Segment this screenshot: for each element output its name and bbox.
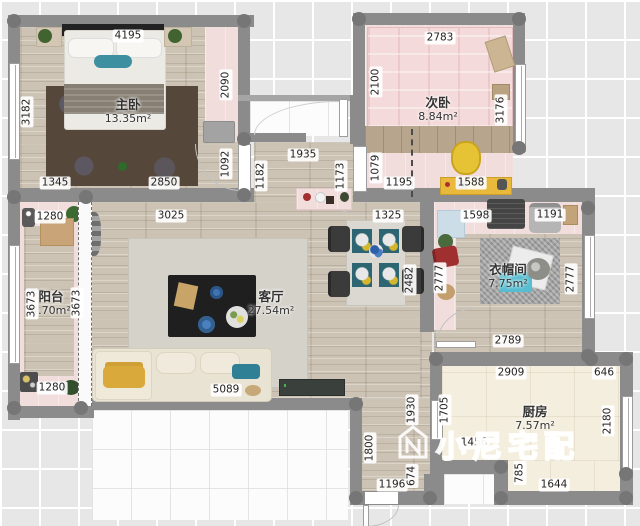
dim-second-width-top: 2783 [425, 32, 456, 45]
dim-hall-1173: 1173 [335, 161, 348, 192]
sofa-teal-pillow [232, 364, 260, 379]
master-window[interactable] [9, 63, 20, 160]
dim-cloak-height-left: 2777 [434, 263, 447, 294]
balcony-vase[interactable] [22, 208, 35, 227]
console-bike-icon [340, 192, 349, 202]
cloak-fur-stone-icon [526, 258, 550, 280]
wall-node [619, 467, 633, 481]
dim-master-width-top: 4195 [113, 30, 144, 43]
dim-kitchen-width-top: 2909 [496, 367, 527, 380]
dim-hall-1930: 1930 [406, 395, 419, 426]
console-box-icon [326, 196, 334, 204]
dim-dining-height: 2482 [404, 265, 417, 296]
dining-centerpiece-icon [369, 244, 383, 258]
master-door-leaf[interactable] [238, 144, 251, 192]
dim-hall-top-width: 1935 [288, 149, 319, 162]
entry-door-leaf[interactable] [363, 505, 369, 526]
desk-item-red-icon [445, 182, 450, 187]
wall-node [581, 201, 595, 215]
wall-master-bottom [8, 188, 254, 202]
dim-dining-width: 1325 [373, 210, 404, 223]
floor-plan-canvas: 4195318220901345285010921935118211731079… [0, 0, 640, 526]
dim-cloak-top-left: 1598 [461, 210, 492, 223]
dim-second-height-right: 3176 [495, 95, 508, 126]
wall-node [349, 397, 363, 411]
dim-master-closet-height: 2090 [220, 70, 233, 101]
wall-node [7, 190, 21, 204]
entry-door-arc [366, 505, 399, 526]
exterior-area-bottom [92, 410, 348, 520]
wall-node [237, 14, 251, 28]
wall-node [581, 349, 595, 363]
exterior-area-notch [444, 474, 494, 504]
coffee-table-flower-1-icon [210, 286, 223, 299]
coffee-table-flower-2-icon [198, 316, 215, 333]
dim-cloak-height-right: 2777 [565, 264, 578, 295]
desk-item-bottle-icon [497, 179, 507, 190]
dim-living-width-top: 3025 [156, 210, 187, 223]
cloakroom-door-leaf[interactable] [436, 341, 476, 348]
dim-master-bottom-right: 2850 [149, 177, 180, 190]
dim-cloak-top-right: 1191 [535, 209, 566, 222]
dining-chair-1[interactable] [328, 226, 350, 252]
balcony-window[interactable] [9, 245, 20, 364]
bay-door-leaf[interactable] [339, 99, 348, 137]
dim-master-bottom-left: 1345 [40, 177, 71, 190]
wall-node [429, 352, 443, 366]
wall-kitchen-bottom [494, 491, 633, 505]
small-plant-icon [118, 162, 127, 171]
console-flower-icon [303, 193, 311, 201]
room-label-cloakroom: 衣帽间7.75m² [488, 263, 528, 290]
wall-node [349, 491, 363, 505]
console-cat-icon [315, 192, 326, 203]
dim-balcony-width-bottom: 1280 [37, 382, 68, 395]
wall-node [7, 401, 21, 415]
wall-node [512, 12, 526, 26]
wall-second-left [353, 13, 365, 146]
dim-entry-width: 1196 [377, 479, 408, 492]
room-label-second-bedroom: 次卧8.84m² [418, 96, 458, 123]
dim-kitchen-mid-width: 1456 [459, 437, 490, 450]
dim-kitchen-height-left: 1705 [439, 395, 452, 426]
second-bedroom-door-leaf[interactable] [353, 146, 367, 192]
plant-left-icon [38, 29, 52, 43]
wall-node [512, 141, 526, 155]
desk-chair[interactable] [451, 141, 481, 175]
wall-master-right [238, 15, 250, 144]
dim-kitchen-top-right: 646 [592, 367, 616, 380]
wall-node [237, 132, 251, 146]
cloak-dresser[interactable] [487, 199, 525, 229]
room-label-kitchen: 厨房7.57m² [515, 405, 555, 432]
dim-hall-1800: 1800 [364, 433, 377, 464]
dining-chair-2[interactable] [328, 271, 350, 297]
dim-second-bottom-left: 1195 [384, 177, 415, 190]
sofa-cushion-1 [156, 352, 196, 374]
bed-accent-pillow [94, 55, 132, 68]
dim-balcony-height-left: 3673 [26, 289, 39, 320]
master-bench[interactable] [203, 121, 235, 143]
placemat-4 [379, 263, 399, 287]
dim-balcony-height-right: 3673 [71, 288, 84, 319]
dim-second-door-height: 1079 [370, 153, 383, 184]
plant-right-icon [168, 29, 182, 43]
entry-door-gap[interactable] [365, 492, 398, 504]
dim-master-height-left: 3182 [21, 97, 34, 128]
dim-balcony-width-top: 1280 [35, 211, 66, 224]
tv-console[interactable] [279, 379, 345, 396]
kitchen-window[interactable] [622, 396, 633, 470]
cloakroom-window[interactable] [584, 235, 595, 319]
wall-node [74, 401, 88, 415]
wall-node [619, 491, 633, 505]
wall-node [352, 12, 366, 26]
dim-second-desk: 1588 [456, 177, 487, 190]
dim-kitchen-width-bottom: 1644 [539, 479, 570, 492]
placemat-3 [352, 263, 372, 287]
dining-chair-3[interactable] [402, 226, 424, 252]
room-label-living-room: 客厅27.54m² [248, 290, 295, 317]
room-label-master-bedroom: 主卧13.35m² [105, 98, 152, 125]
wall-node [423, 491, 437, 505]
balcony-basket[interactable] [20, 372, 38, 392]
sofa-yellow-pillow [103, 366, 145, 388]
wall-node [494, 460, 508, 474]
dim-sofa-wall: 5089 [211, 384, 242, 397]
wall-node [7, 14, 21, 28]
dim-cloak-width-bottom: 2789 [493, 335, 524, 348]
dim-second-height-left: 2100 [370, 67, 383, 98]
wall-dining-east [420, 190, 434, 332]
coffee-table-plate [226, 306, 248, 328]
wall-node [237, 188, 251, 202]
wall-kitchen-top [430, 352, 633, 366]
second-bedroom-window[interactable] [515, 64, 526, 152]
wall-node [619, 352, 633, 366]
wall-second-top [353, 13, 525, 25]
dim-master-door: 1092 [220, 149, 233, 180]
wall-node [79, 190, 93, 204]
dim-entry-674: 674 [406, 464, 419, 488]
sofa-throw [245, 385, 261, 396]
dim-kitchen-height-right: 2180 [602, 406, 615, 437]
dim-hall-1182: 1182 [255, 161, 268, 192]
dim-kitchen-notch: 785 [514, 461, 527, 485]
second-wardrobe-strip[interactable] [365, 126, 513, 153]
wall-node [494, 491, 508, 505]
